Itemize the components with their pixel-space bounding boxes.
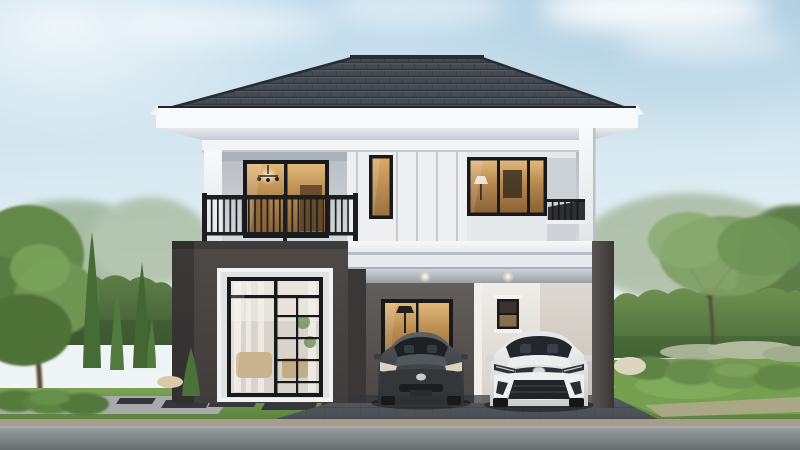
lamp-silhouette — [396, 306, 414, 313]
asphalt-road — [0, 426, 800, 450]
upper-right-window — [467, 157, 547, 216]
side-mirror — [486, 355, 494, 361]
sofa — [236, 352, 272, 378]
center-pilaster-panel — [347, 152, 467, 242]
curb — [0, 419, 800, 427]
scene-architectural-render — [0, 0, 800, 450]
wheel — [569, 398, 584, 407]
carport-service-window — [494, 295, 522, 333]
side-mirror — [584, 355, 592, 361]
living-room-window — [217, 268, 333, 402]
lower-grille — [508, 380, 570, 399]
scene-svg — [0, 0, 800, 450]
eave-fascia — [150, 104, 644, 153]
badge — [416, 374, 426, 381]
carport-header-beam — [348, 255, 614, 269]
wheel — [493, 398, 508, 407]
side-mirror — [461, 354, 468, 360]
balcony-railing — [202, 193, 358, 242]
stair-slot-window — [369, 155, 393, 219]
flower-bush — [157, 376, 183, 388]
carport-downlight — [506, 274, 510, 278]
wheel — [447, 396, 461, 405]
white-flower-bush — [614, 357, 646, 375]
side-mirror — [374, 354, 381, 360]
eave-soffit — [158, 128, 636, 140]
carport-downlight — [423, 274, 427, 278]
shrub-row-left — [0, 390, 109, 415]
wheel — [381, 396, 395, 405]
side-terrace-railing — [546, 199, 587, 224]
carport-ceiling — [348, 269, 614, 283]
license-plate — [410, 390, 432, 397]
hip-tile-roof — [158, 57, 636, 110]
carport-column — [592, 241, 614, 408]
porch-column-right — [579, 128, 595, 242]
